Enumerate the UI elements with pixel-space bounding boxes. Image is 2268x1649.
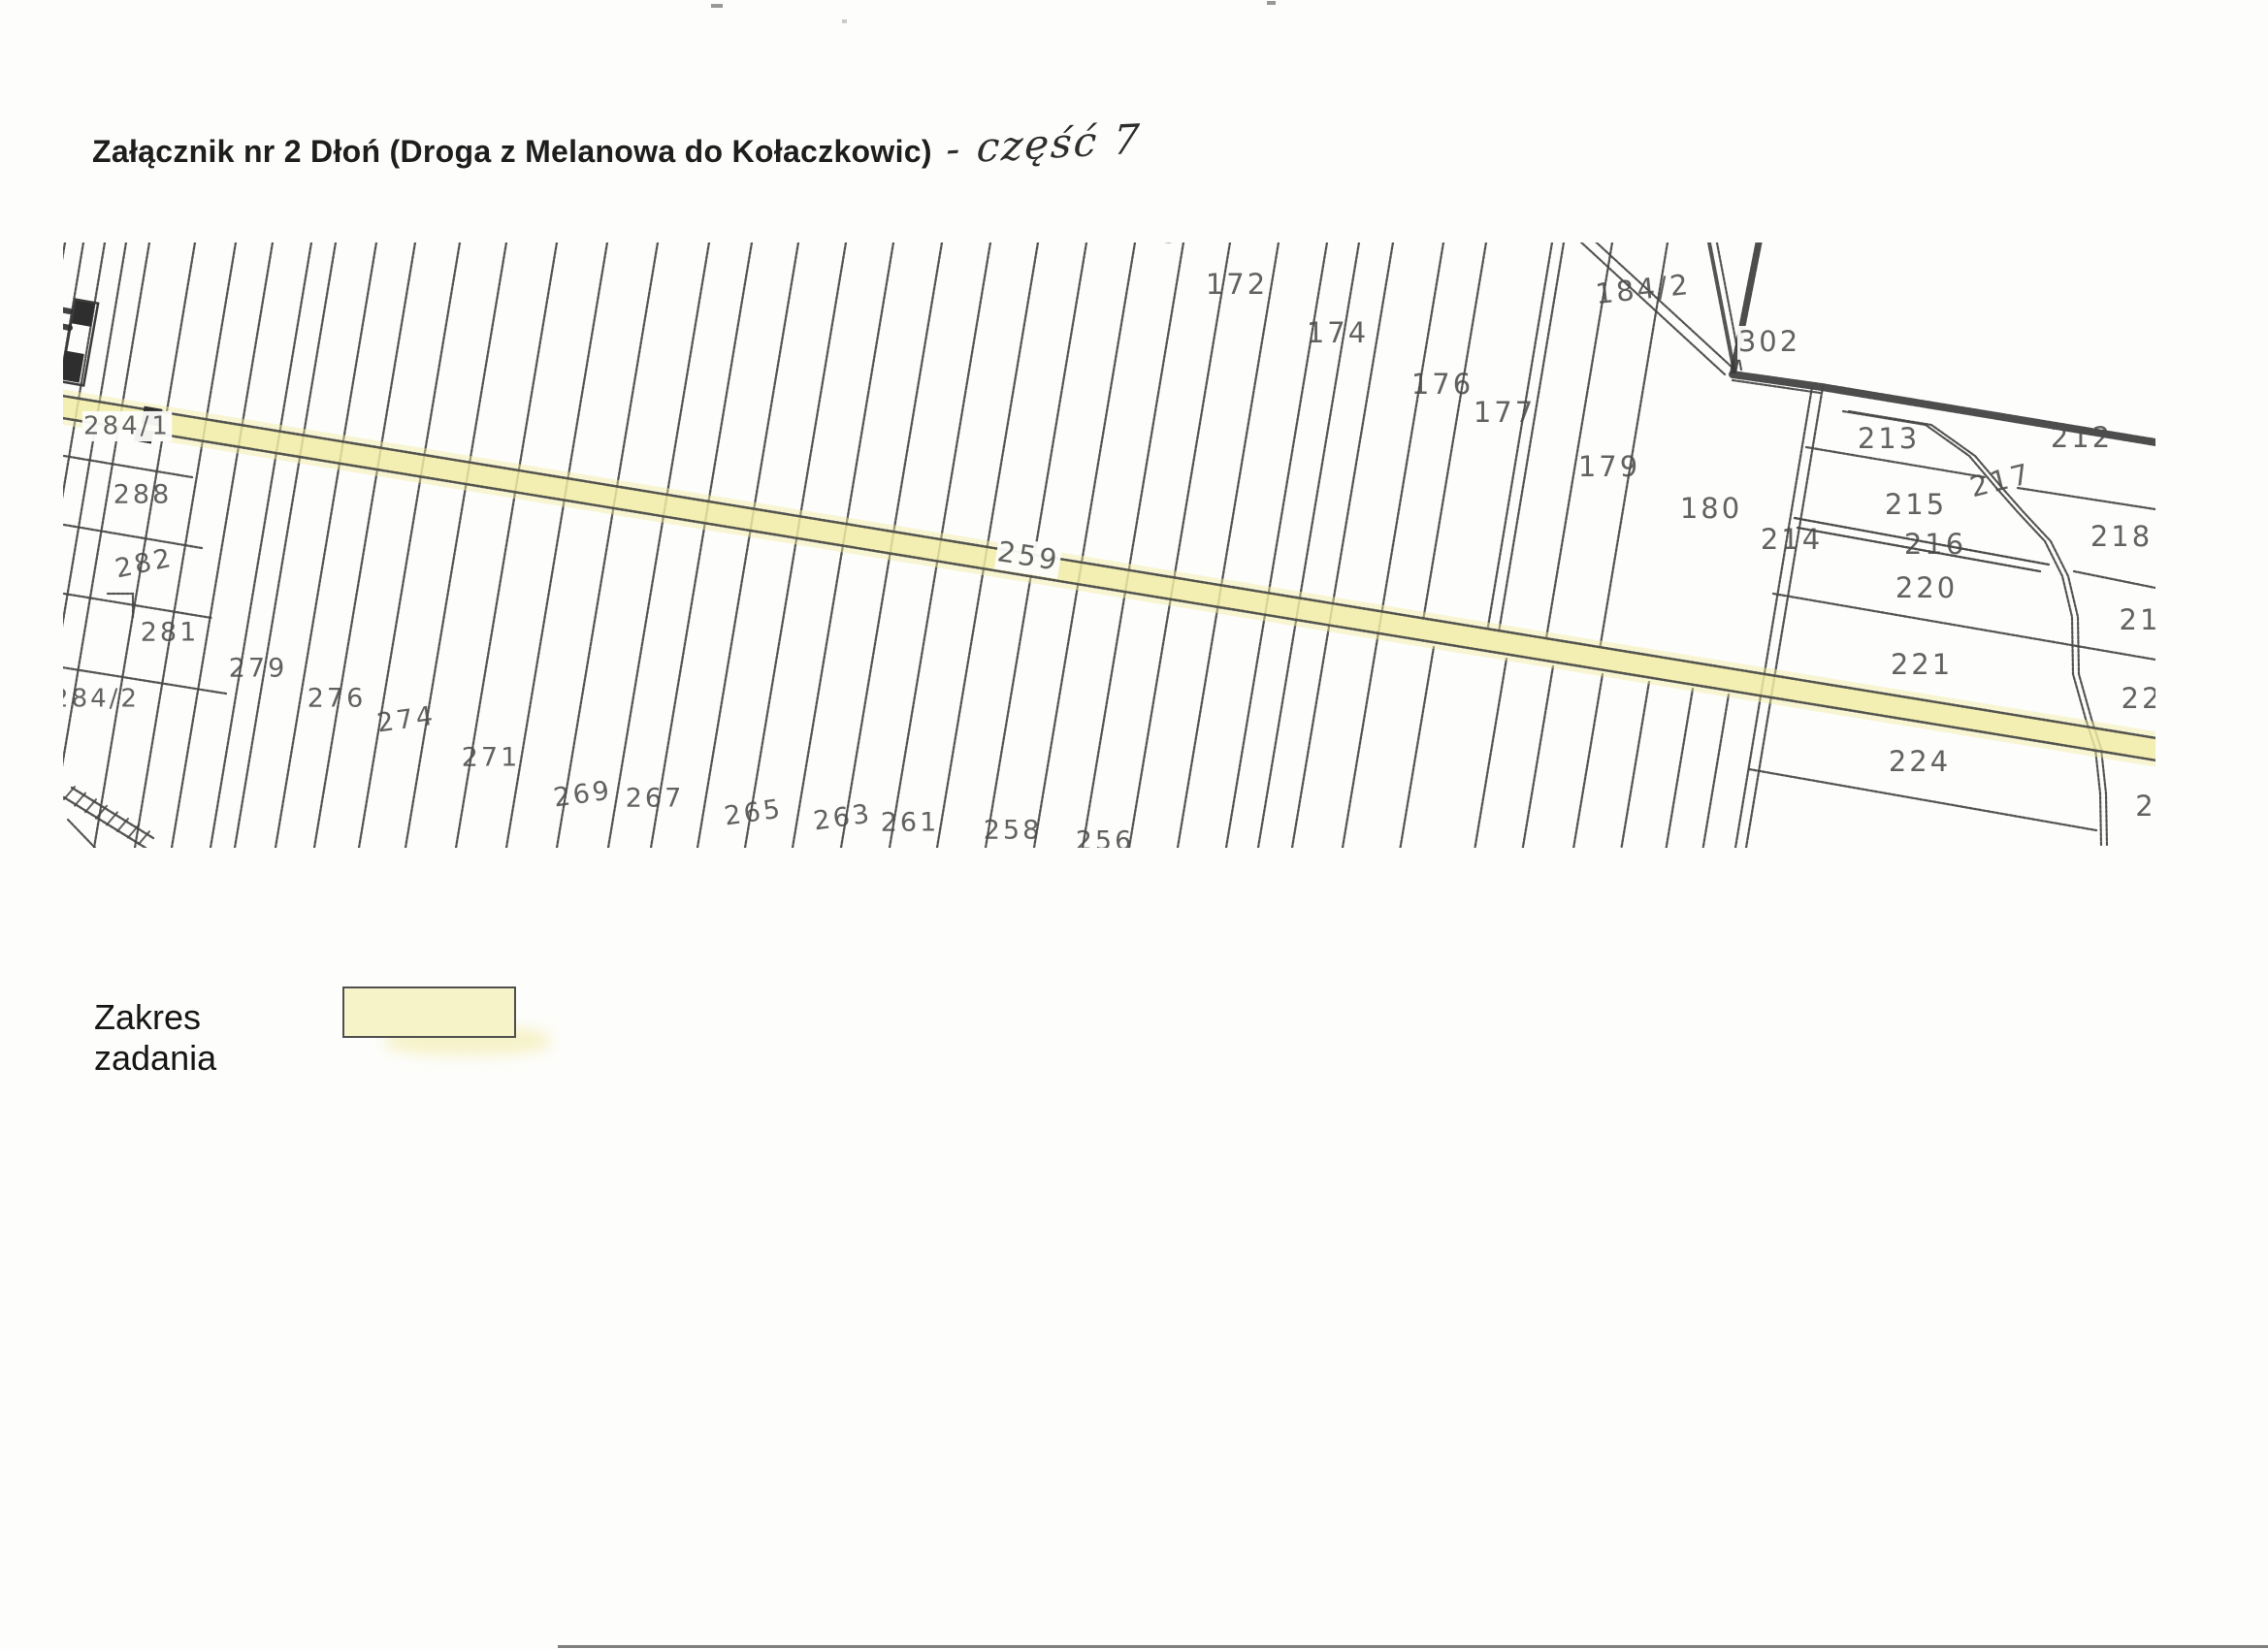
parcel-label-22: 22 bbox=[2122, 682, 2155, 715]
parcel-label-214: 214 bbox=[1761, 523, 1823, 556]
parcel-label-288: 288 bbox=[113, 480, 173, 510]
parcel-label-182: 182 bbox=[1621, 242, 1683, 248]
parcel-label-213: 213 bbox=[1858, 422, 1920, 455]
parcel-label-263: 263 bbox=[812, 798, 874, 836]
parcel-label-261: 261 bbox=[881, 808, 940, 838]
title-printed: Załącznik nr 2 Dłoń (Droga z Melanowa do… bbox=[92, 134, 932, 169]
parcel-label-267: 267 bbox=[626, 784, 685, 814]
parcel-label-184/2: 184/2 bbox=[1594, 268, 1693, 310]
parcel-label-172: 172 bbox=[1206, 268, 1268, 301]
parcel-label-220: 220 bbox=[1895, 571, 1958, 604]
parcel-label-218: 218 bbox=[2090, 520, 2153, 553]
parcel-label-258: 258 bbox=[984, 816, 1043, 846]
parcel-label-180: 180 bbox=[1680, 492, 1742, 525]
parcel-label-2: 2 bbox=[2135, 790, 2155, 823]
parcel-label-265: 265 bbox=[723, 793, 785, 831]
parcel-label-284/1: 284/1 bbox=[83, 412, 171, 441]
parcel-label-279: 279 bbox=[229, 654, 288, 684]
scan-speck bbox=[842, 19, 847, 23]
parcel-label-215: 215 bbox=[1885, 488, 1947, 521]
parcel-label-302: 302 bbox=[1738, 325, 1800, 358]
parcel-label-179: 179 bbox=[1578, 450, 1640, 483]
parcel-label-284/2: 284/2 bbox=[63, 685, 140, 714]
parcel-label-274: 274 bbox=[375, 700, 437, 738]
parcel-label-177: 177 bbox=[1474, 396, 1536, 429]
scanner-edge-line bbox=[558, 1645, 2268, 1648]
cadastral-map-drawing: 172174176177179180184/2302182175259284/1… bbox=[63, 242, 2155, 848]
parcel-label-21: 21 bbox=[2120, 603, 2155, 636]
parcel-label-269: 269 bbox=[552, 775, 614, 813]
page-title: Załącznik nr 2 Dłoń (Droga z Melanowa do… bbox=[92, 124, 1141, 172]
parcel-label-174: 174 bbox=[1307, 316, 1369, 349]
parcel-label-282: 282 bbox=[113, 543, 177, 585]
scan-speck bbox=[1267, 1, 1276, 5]
parcel-label-276: 276 bbox=[308, 684, 367, 714]
parcel-label-175: 175 bbox=[1119, 242, 1182, 249]
scanned-document-page: Załącznik nr 2 Dłoń (Droga z Melanowa do… bbox=[0, 0, 2268, 1649]
legend-label: Zakres zadania bbox=[94, 997, 216, 1079]
parcel-label-271: 271 bbox=[462, 743, 521, 773]
parcel-label-224: 224 bbox=[1889, 745, 1951, 778]
cadastral-map: 172174176177179180184/2302182175259284/1… bbox=[63, 242, 2155, 848]
title-handwritten-part: - część 7 bbox=[945, 115, 1143, 174]
parcel-label-176: 176 bbox=[1411, 368, 1474, 401]
scan-speck bbox=[711, 4, 723, 8]
parcel-label-221: 221 bbox=[1891, 648, 1953, 681]
legend-color-swatch bbox=[342, 986, 516, 1038]
parcel-labels: 172174176177179180184/2302182175259284/1… bbox=[63, 242, 2155, 848]
parcel-label-256: 256 bbox=[1076, 826, 1135, 849]
parcel-label-281: 281 bbox=[141, 618, 200, 648]
parcel-label-212: 212 bbox=[2051, 421, 2113, 454]
